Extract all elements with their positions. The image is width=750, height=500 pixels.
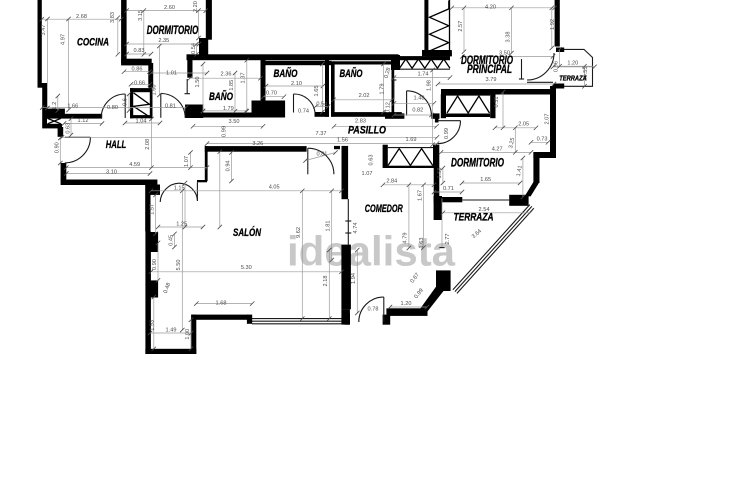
svg-text:PRINCIPAL: PRINCIPAL [467, 64, 512, 76]
svg-text:1.65: 1.65 [480, 177, 491, 183]
svg-text:4.59: 4.59 [129, 162, 140, 168]
svg-text:SALÓN: SALÓN [233, 226, 262, 239]
svg-text:1.25: 1.25 [176, 221, 187, 227]
svg-text:4.79: 4.79 [403, 233, 409, 244]
svg-text:1.65: 1.65 [314, 86, 320, 97]
svg-text:1.74: 1.74 [418, 72, 429, 78]
svg-text:0.12: 0.12 [386, 102, 392, 113]
svg-text:0.66: 0.66 [134, 81, 145, 87]
svg-text:1.67: 1.67 [418, 190, 424, 201]
svg-text:DORMITORIO: DORMITORIO [147, 25, 199, 37]
svg-text:1.15: 1.15 [174, 185, 185, 191]
svg-text:TERRAZA: TERRAZA [454, 212, 494, 224]
svg-text:idealista: idealista [287, 228, 456, 275]
svg-text:1.07: 1.07 [184, 156, 190, 167]
svg-text:COMEDOR: COMEDOR [365, 203, 403, 215]
svg-text:4.74: 4.74 [353, 223, 359, 234]
svg-text:2.02: 2.02 [359, 93, 370, 99]
svg-text:1.07: 1.07 [362, 171, 373, 177]
svg-text:2.36: 2.36 [221, 72, 232, 78]
svg-text:1.98: 1.98 [427, 80, 433, 91]
svg-text:0.83: 0.83 [134, 48, 145, 54]
svg-text:BAÑO: BAÑO [274, 67, 298, 80]
svg-text:2.05: 2.05 [518, 122, 529, 128]
svg-text:DORMITORIO: DORMITORIO [451, 157, 504, 169]
svg-text:0.80: 0.80 [107, 105, 118, 111]
svg-text:0.63: 0.63 [369, 155, 375, 166]
svg-text:0.94: 0.94 [225, 160, 231, 171]
svg-text:2.57: 2.57 [458, 21, 464, 32]
svg-text:0.99: 0.99 [444, 128, 450, 139]
svg-text:0.78: 0.78 [368, 307, 379, 313]
svg-text:1.79: 1.79 [223, 106, 234, 112]
svg-text:1.92: 1.92 [550, 19, 556, 30]
svg-text:0.90: 0.90 [55, 142, 61, 153]
svg-text:0.73: 0.73 [537, 136, 548, 142]
svg-text:2.20: 2.20 [193, 1, 199, 12]
svg-text:4.27: 4.27 [492, 147, 503, 153]
svg-text:0.54: 0.54 [191, 43, 197, 54]
svg-text:0.81: 0.81 [165, 104, 176, 110]
svg-text:2.60: 2.60 [164, 5, 175, 11]
svg-text:HALL: HALL [106, 139, 127, 151]
svg-text:4.20: 4.20 [485, 5, 496, 11]
svg-text:3.38: 3.38 [506, 32, 512, 43]
svg-text:1.48: 1.48 [414, 96, 425, 102]
svg-text:4.05: 4.05 [269, 185, 280, 191]
svg-text:0.70: 0.70 [266, 90, 277, 96]
svg-text:0.74: 0.74 [298, 109, 309, 115]
svg-text:1.81: 1.81 [326, 221, 332, 232]
svg-text:0.31: 0.31 [494, 97, 500, 108]
svg-text:1.69: 1.69 [406, 137, 417, 143]
svg-text:1.68: 1.68 [216, 301, 227, 307]
svg-text:1.49: 1.49 [166, 327, 177, 333]
svg-text:3.10: 3.10 [106, 170, 117, 176]
svg-text:0.86: 0.86 [132, 67, 143, 73]
svg-text:5.30: 5.30 [241, 265, 252, 271]
svg-text:0.45: 0.45 [169, 235, 175, 246]
svg-text:3.26: 3.26 [252, 141, 263, 147]
svg-text:1.79: 1.79 [380, 84, 386, 95]
svg-text:BAÑO: BAÑO [209, 90, 233, 103]
svg-text:3.50: 3.50 [229, 119, 240, 125]
svg-text:1.57: 1.57 [150, 204, 156, 215]
svg-text:1.60: 1.60 [151, 85, 157, 96]
svg-text:4.97: 4.97 [61, 34, 67, 45]
svg-text:BAÑO: BAÑO [340, 67, 363, 80]
svg-text:1.04: 1.04 [136, 119, 147, 125]
svg-text:PASILLO: PASILLO [348, 125, 386, 137]
svg-text:2.18: 2.18 [323, 276, 329, 287]
svg-text:TERRAZA: TERRAZA [559, 74, 587, 83]
svg-text:1.20: 1.20 [401, 301, 412, 307]
svg-text:3.15: 3.15 [138, 10, 144, 21]
svg-text:2.10: 2.10 [291, 81, 302, 87]
svg-text:2.77: 2.77 [445, 234, 451, 245]
svg-text:2.07: 2.07 [545, 114, 551, 125]
svg-text:1.50: 1.50 [195, 77, 201, 88]
svg-text:9.62: 9.62 [296, 227, 302, 238]
svg-text:1.37: 1.37 [241, 73, 247, 84]
svg-text:2.08: 2.08 [145, 139, 151, 150]
svg-text:COCINA: COCINA [77, 37, 109, 49]
svg-text:1.94: 1.94 [351, 273, 357, 284]
svg-text:0.54: 0.54 [316, 101, 327, 107]
svg-text:1.12: 1.12 [78, 118, 89, 124]
svg-text:1.58: 1.58 [437, 168, 443, 179]
svg-text:2.68: 2.68 [76, 14, 87, 20]
svg-text:3.83: 3.83 [110, 12, 116, 23]
svg-text:1.00: 1.00 [185, 329, 191, 340]
svg-text:0.81: 0.81 [316, 151, 327, 157]
svg-text:0.99: 0.99 [221, 126, 227, 137]
svg-text:0.71: 0.71 [443, 186, 454, 192]
svg-text:1.2: 1.2 [52, 102, 58, 110]
svg-text:1.63: 1.63 [419, 238, 425, 249]
svg-text:1.01: 1.01 [166, 71, 177, 77]
svg-text:0.96: 0.96 [554, 61, 560, 72]
svg-text:5.50: 5.50 [176, 260, 182, 271]
svg-text:2.84: 2.84 [386, 178, 397, 184]
svg-text:1.56: 1.56 [337, 137, 348, 143]
svg-text:1.20: 1.20 [567, 61, 578, 67]
svg-text:1.93: 1.93 [149, 320, 155, 331]
svg-text:3.47: 3.47 [41, 25, 47, 36]
svg-text:0.6: 0.6 [123, 98, 129, 106]
svg-text:1.66: 1.66 [67, 104, 78, 110]
svg-text:0.63: 0.63 [65, 123, 71, 134]
svg-text:1.85: 1.85 [229, 80, 235, 91]
svg-text:7.37: 7.37 [316, 131, 327, 137]
svg-text:2.35: 2.35 [158, 38, 169, 44]
svg-text:0.90: 0.90 [152, 259, 158, 270]
svg-text:0.82: 0.82 [412, 108, 423, 114]
svg-text:3.79: 3.79 [486, 77, 497, 83]
